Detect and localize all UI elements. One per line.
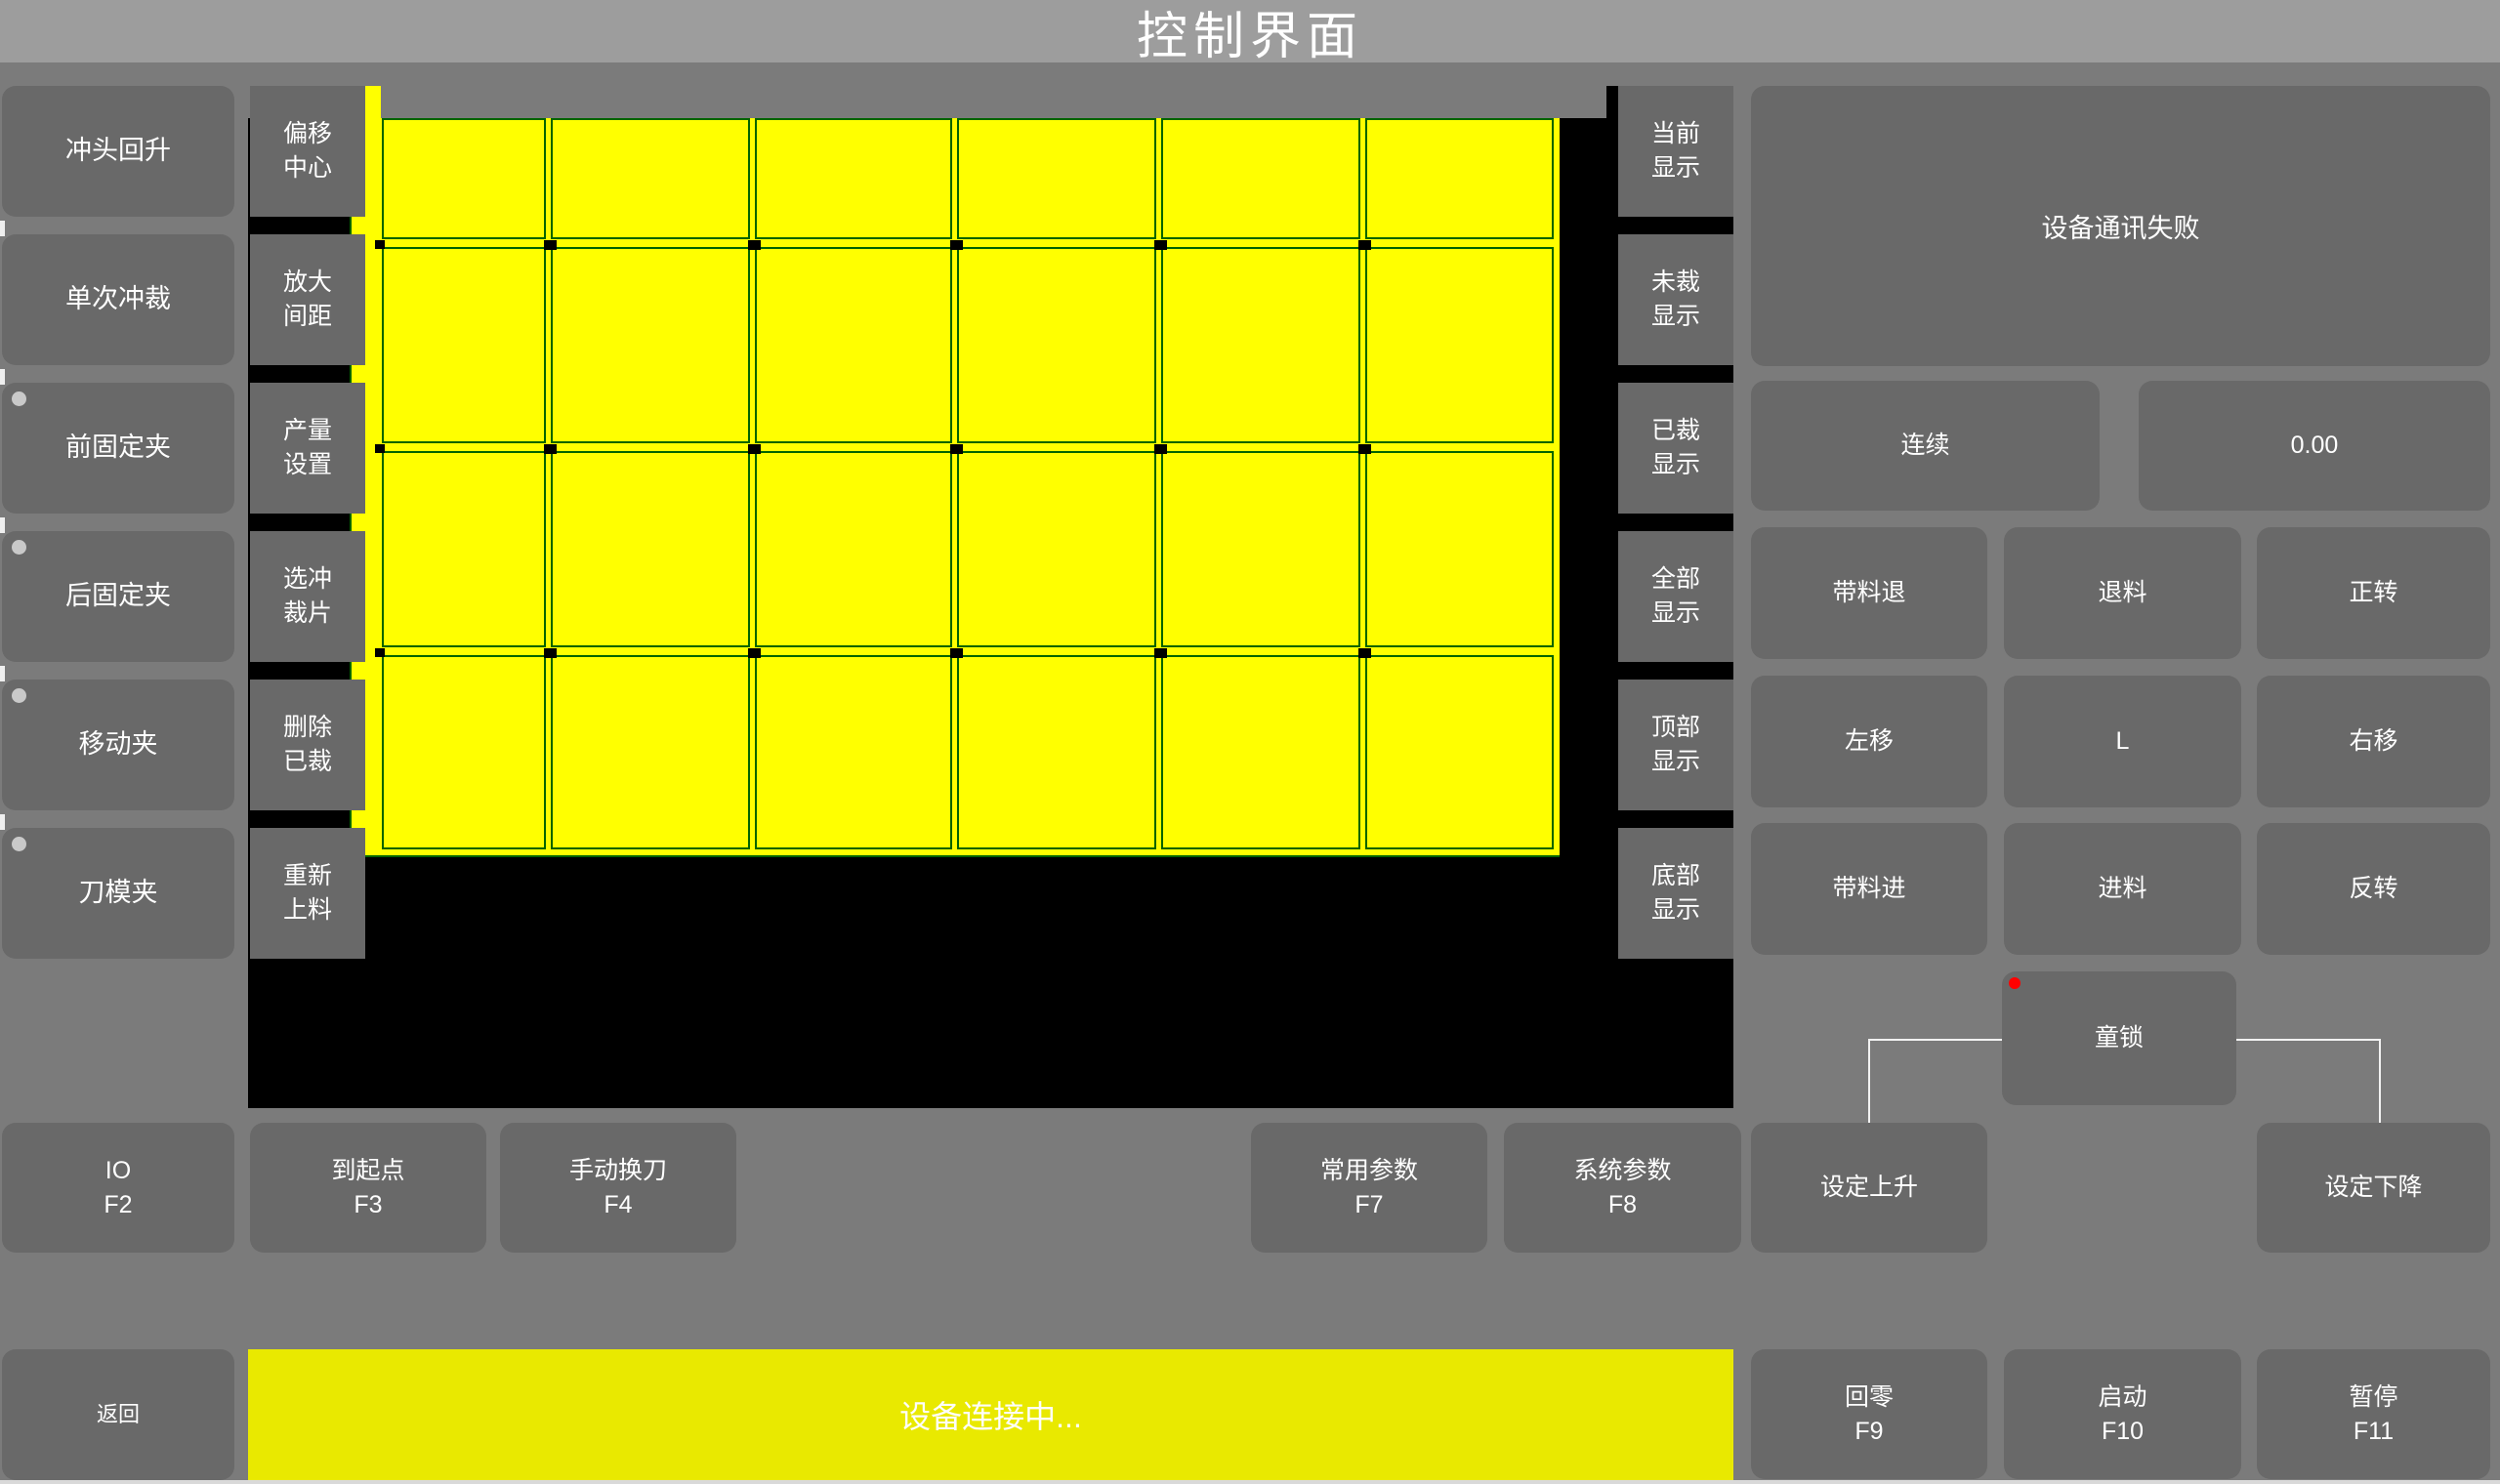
rear-clamp-label: 后固定夹 bbox=[65, 578, 171, 615]
status-dot bbox=[12, 837, 26, 851]
die-clamp-button[interactable]: 刀模夹 bbox=[2, 828, 234, 959]
single-punch-button[interactable]: 单次冲裁 bbox=[2, 234, 234, 365]
material-cell[interactable] bbox=[957, 451, 1156, 647]
material-canvas bbox=[248, 86, 1733, 1108]
delete-cut-button[interactable]: 删除 已裁 bbox=[250, 680, 365, 810]
material-cell[interactable] bbox=[551, 118, 750, 239]
reverse-rotate-button[interactable]: 反转 bbox=[2257, 823, 2490, 955]
show-uncut-button[interactable]: 未裁 显示 bbox=[1618, 234, 1733, 365]
edge-tick bbox=[0, 814, 5, 830]
feed-back-button[interactable]: 带料退 bbox=[1751, 527, 1987, 659]
select-piece-button[interactable]: 选冲 裁片 bbox=[250, 531, 365, 662]
start-label: 启动 F10 bbox=[2098, 1381, 2146, 1449]
reload-material-button[interactable]: 重新 上料 bbox=[250, 828, 365, 959]
material-cell[interactable] bbox=[1365, 118, 1554, 239]
load-label: 进料 bbox=[2098, 872, 2146, 906]
material-cell[interactable] bbox=[1161, 655, 1360, 849]
cut-notch bbox=[375, 444, 385, 453]
material-cell[interactable] bbox=[1161, 247, 1360, 443]
sheet-left-edge bbox=[365, 86, 381, 120]
moving-clamp-label: 移动夹 bbox=[79, 726, 158, 763]
material-cell[interactable] bbox=[957, 247, 1156, 443]
canvas-top-mask bbox=[248, 86, 1606, 118]
cut-notch bbox=[375, 648, 385, 657]
comm-status-message-box: 设备通讯失败 bbox=[1751, 86, 2490, 366]
show-bottom-label: 底部 显示 bbox=[1651, 859, 1700, 927]
edge-tick bbox=[0, 517, 5, 533]
reload-material-label: 重新 上料 bbox=[283, 859, 332, 927]
cut-notch bbox=[1358, 444, 1371, 454]
move-right-button[interactable]: 右移 bbox=[2257, 676, 2490, 807]
status-message: 设备连接中... bbox=[899, 1392, 1082, 1437]
edge-tick bbox=[0, 666, 5, 681]
material-cell[interactable] bbox=[957, 118, 1156, 239]
material-cell[interactable] bbox=[551, 247, 750, 443]
cut-notch bbox=[1154, 444, 1167, 454]
show-all-label: 全部 显示 bbox=[1651, 562, 1700, 631]
set-rise-button[interactable]: 设定上升 bbox=[1751, 1123, 1987, 1253]
unload-label: 退料 bbox=[2098, 576, 2146, 610]
reverse-rotate-label: 反转 bbox=[2349, 872, 2397, 906]
continuous-mode-button[interactable]: 连续 bbox=[1751, 381, 2100, 511]
cut-notch bbox=[748, 240, 761, 250]
value-display-text: 0.00 bbox=[2291, 429, 2339, 463]
to-origin-label: 到起点 F3 bbox=[331, 1154, 404, 1222]
front-clamp-label: 前固定夹 bbox=[65, 430, 171, 467]
l-button[interactable]: L bbox=[2004, 676, 2241, 807]
child-lock-label: 童锁 bbox=[2095, 1021, 2144, 1055]
material-cell[interactable] bbox=[755, 118, 952, 239]
punch-up-label: 冲头回升 bbox=[65, 133, 171, 170]
material-cell[interactable] bbox=[1161, 451, 1360, 647]
material-cell[interactable] bbox=[755, 247, 952, 443]
feed-back-label: 带料退 bbox=[1832, 576, 1905, 610]
feed-forward-label: 带料进 bbox=[1832, 872, 1905, 906]
load-button[interactable]: 进料 bbox=[2004, 823, 2241, 955]
enlarge-spacing-label: 放大 间距 bbox=[283, 266, 332, 334]
show-current-button[interactable]: 当前 显示 bbox=[1618, 86, 1733, 217]
material-cell[interactable] bbox=[551, 655, 750, 849]
forward-rotate-button[interactable]: 正转 bbox=[2257, 527, 2490, 659]
set-fall-label: 设定下降 bbox=[2324, 1171, 2422, 1205]
select-piece-label: 选冲 裁片 bbox=[283, 562, 332, 631]
offset-center-label: 偏移 中心 bbox=[283, 117, 332, 185]
forward-rotate-label: 正转 bbox=[2349, 576, 2397, 610]
status-dot bbox=[12, 540, 26, 555]
status-dot bbox=[12, 392, 26, 406]
page-title: 控制界面 bbox=[1137, 0, 1363, 68]
continuous-mode-label: 连续 bbox=[1900, 429, 1949, 463]
manual-tool-change-button[interactable]: 手动换刀 F4 bbox=[500, 1123, 736, 1253]
moving-clamp-button[interactable]: 移动夹 bbox=[2, 680, 234, 810]
io-label: IO F2 bbox=[104, 1154, 132, 1222]
cut-notch bbox=[544, 240, 557, 250]
child-lock-bracket-left bbox=[1868, 1039, 2004, 1125]
material-cell[interactable] bbox=[755, 451, 952, 647]
die-clamp-label: 刀模夹 bbox=[79, 875, 158, 912]
manual-tool-change-label: 手动换刀 F4 bbox=[569, 1154, 667, 1222]
output-count-button[interactable]: 产量 设置 bbox=[250, 383, 365, 514]
cut-notch bbox=[1154, 648, 1167, 658]
system-params-label: 系统参数 F8 bbox=[1573, 1154, 1671, 1222]
alert-dot bbox=[2009, 977, 2021, 989]
single-punch-label: 单次冲裁 bbox=[65, 281, 171, 318]
bottom-edge-strip bbox=[0, 1480, 2500, 1484]
feed-forward-button[interactable]: 带料进 bbox=[1751, 823, 1987, 955]
material-cell[interactable] bbox=[755, 655, 952, 849]
move-right-label: 右移 bbox=[2349, 724, 2397, 759]
material-cell[interactable] bbox=[1365, 247, 1554, 443]
cut-notch bbox=[1358, 240, 1371, 250]
show-cut-label: 已裁 显示 bbox=[1651, 414, 1700, 482]
material-cell[interactable] bbox=[382, 451, 546, 647]
show-all-button[interactable]: 全部 显示 bbox=[1618, 531, 1733, 662]
back-button[interactable]: 返回 bbox=[2, 1349, 234, 1480]
show-cut-button[interactable]: 已裁 显示 bbox=[1618, 383, 1733, 514]
material-cell[interactable] bbox=[1365, 655, 1554, 849]
offset-center-button[interactable]: 偏移 中心 bbox=[250, 86, 365, 217]
cut-notch bbox=[950, 648, 963, 658]
material-cell[interactable] bbox=[1365, 451, 1554, 647]
start-button[interactable]: 启动 F10 bbox=[2004, 1349, 2241, 1479]
delete-cut-label: 删除 已裁 bbox=[283, 711, 332, 779]
cut-notch bbox=[544, 648, 557, 658]
value-display: 0.00 bbox=[2139, 381, 2490, 511]
set-fall-button[interactable]: 设定下降 bbox=[2257, 1123, 2490, 1253]
status-bar: 设备连接中... bbox=[248, 1349, 1733, 1480]
punch-up-button[interactable]: 冲头回升 bbox=[2, 86, 234, 217]
material-cell[interactable] bbox=[382, 655, 546, 849]
comm-status-message: 设备通讯失败 bbox=[2042, 207, 2200, 245]
title-bar: 控制界面 bbox=[0, 0, 2500, 62]
pause-label: 暂停 F11 bbox=[2349, 1381, 2397, 1449]
io-button[interactable]: IO F2 bbox=[2, 1123, 234, 1253]
child-lock-button[interactable]: 童锁 bbox=[2002, 971, 2236, 1105]
cut-notch bbox=[950, 240, 963, 250]
cut-notch bbox=[748, 648, 761, 658]
edge-tick bbox=[0, 221, 5, 236]
back-label: 返回 bbox=[97, 1400, 140, 1430]
common-params-button[interactable]: 常用参数 F7 bbox=[1251, 1123, 1487, 1253]
home-label: 回零 F9 bbox=[1845, 1381, 1894, 1449]
cut-notch bbox=[375, 240, 385, 249]
rear-clamp-button[interactable]: 后固定夹 bbox=[2, 531, 234, 662]
edge-tick bbox=[0, 369, 5, 385]
cut-notch bbox=[748, 444, 761, 454]
home-button[interactable]: 回零 F9 bbox=[1751, 1349, 1987, 1479]
cut-notch bbox=[950, 444, 963, 454]
material-sheet bbox=[350, 118, 1560, 857]
material-cell[interactable] bbox=[1161, 118, 1360, 239]
pause-button[interactable]: 暂停 F11 bbox=[2257, 1349, 2490, 1479]
unload-button[interactable]: 退料 bbox=[2004, 527, 2241, 659]
show-bottom-button[interactable]: 底部 显示 bbox=[1618, 828, 1733, 959]
cut-notch bbox=[1358, 648, 1371, 658]
show-top-label: 顶部 显示 bbox=[1651, 711, 1700, 779]
move-left-label: 左移 bbox=[1845, 724, 1894, 759]
material-cell[interactable] bbox=[382, 247, 546, 443]
front-clamp-button[interactable]: 前固定夹 bbox=[2, 383, 234, 514]
show-top-button[interactable]: 顶部 显示 bbox=[1618, 680, 1733, 810]
show-uncut-label: 未裁 显示 bbox=[1651, 266, 1700, 334]
set-rise-label: 设定上升 bbox=[1820, 1171, 1918, 1205]
to-origin-button[interactable]: 到起点 F3 bbox=[250, 1123, 486, 1253]
status-dot bbox=[12, 688, 26, 703]
l-label: L bbox=[2116, 724, 2130, 759]
child-lock-bracket-right bbox=[2236, 1039, 2381, 1125]
show-current-label: 当前 显示 bbox=[1651, 117, 1700, 185]
material-cell[interactable] bbox=[382, 118, 546, 239]
cut-notch bbox=[544, 444, 557, 454]
enlarge-spacing-button[interactable]: 放大 间距 bbox=[250, 234, 365, 365]
material-cell[interactable] bbox=[957, 655, 1156, 849]
output-count-label: 产量 设置 bbox=[283, 414, 332, 482]
control-screen: 控制界面 设备通讯失败 连续 0.00 童锁 返回 设备连接中... 冲头回升单… bbox=[0, 0, 2500, 1484]
cut-notch bbox=[1154, 240, 1167, 250]
move-left-button[interactable]: 左移 bbox=[1751, 676, 1987, 807]
system-params-button[interactable]: 系统参数 F8 bbox=[1504, 1123, 1741, 1253]
common-params-label: 常用参数 F7 bbox=[1320, 1154, 1418, 1222]
material-cell[interactable] bbox=[551, 451, 750, 647]
